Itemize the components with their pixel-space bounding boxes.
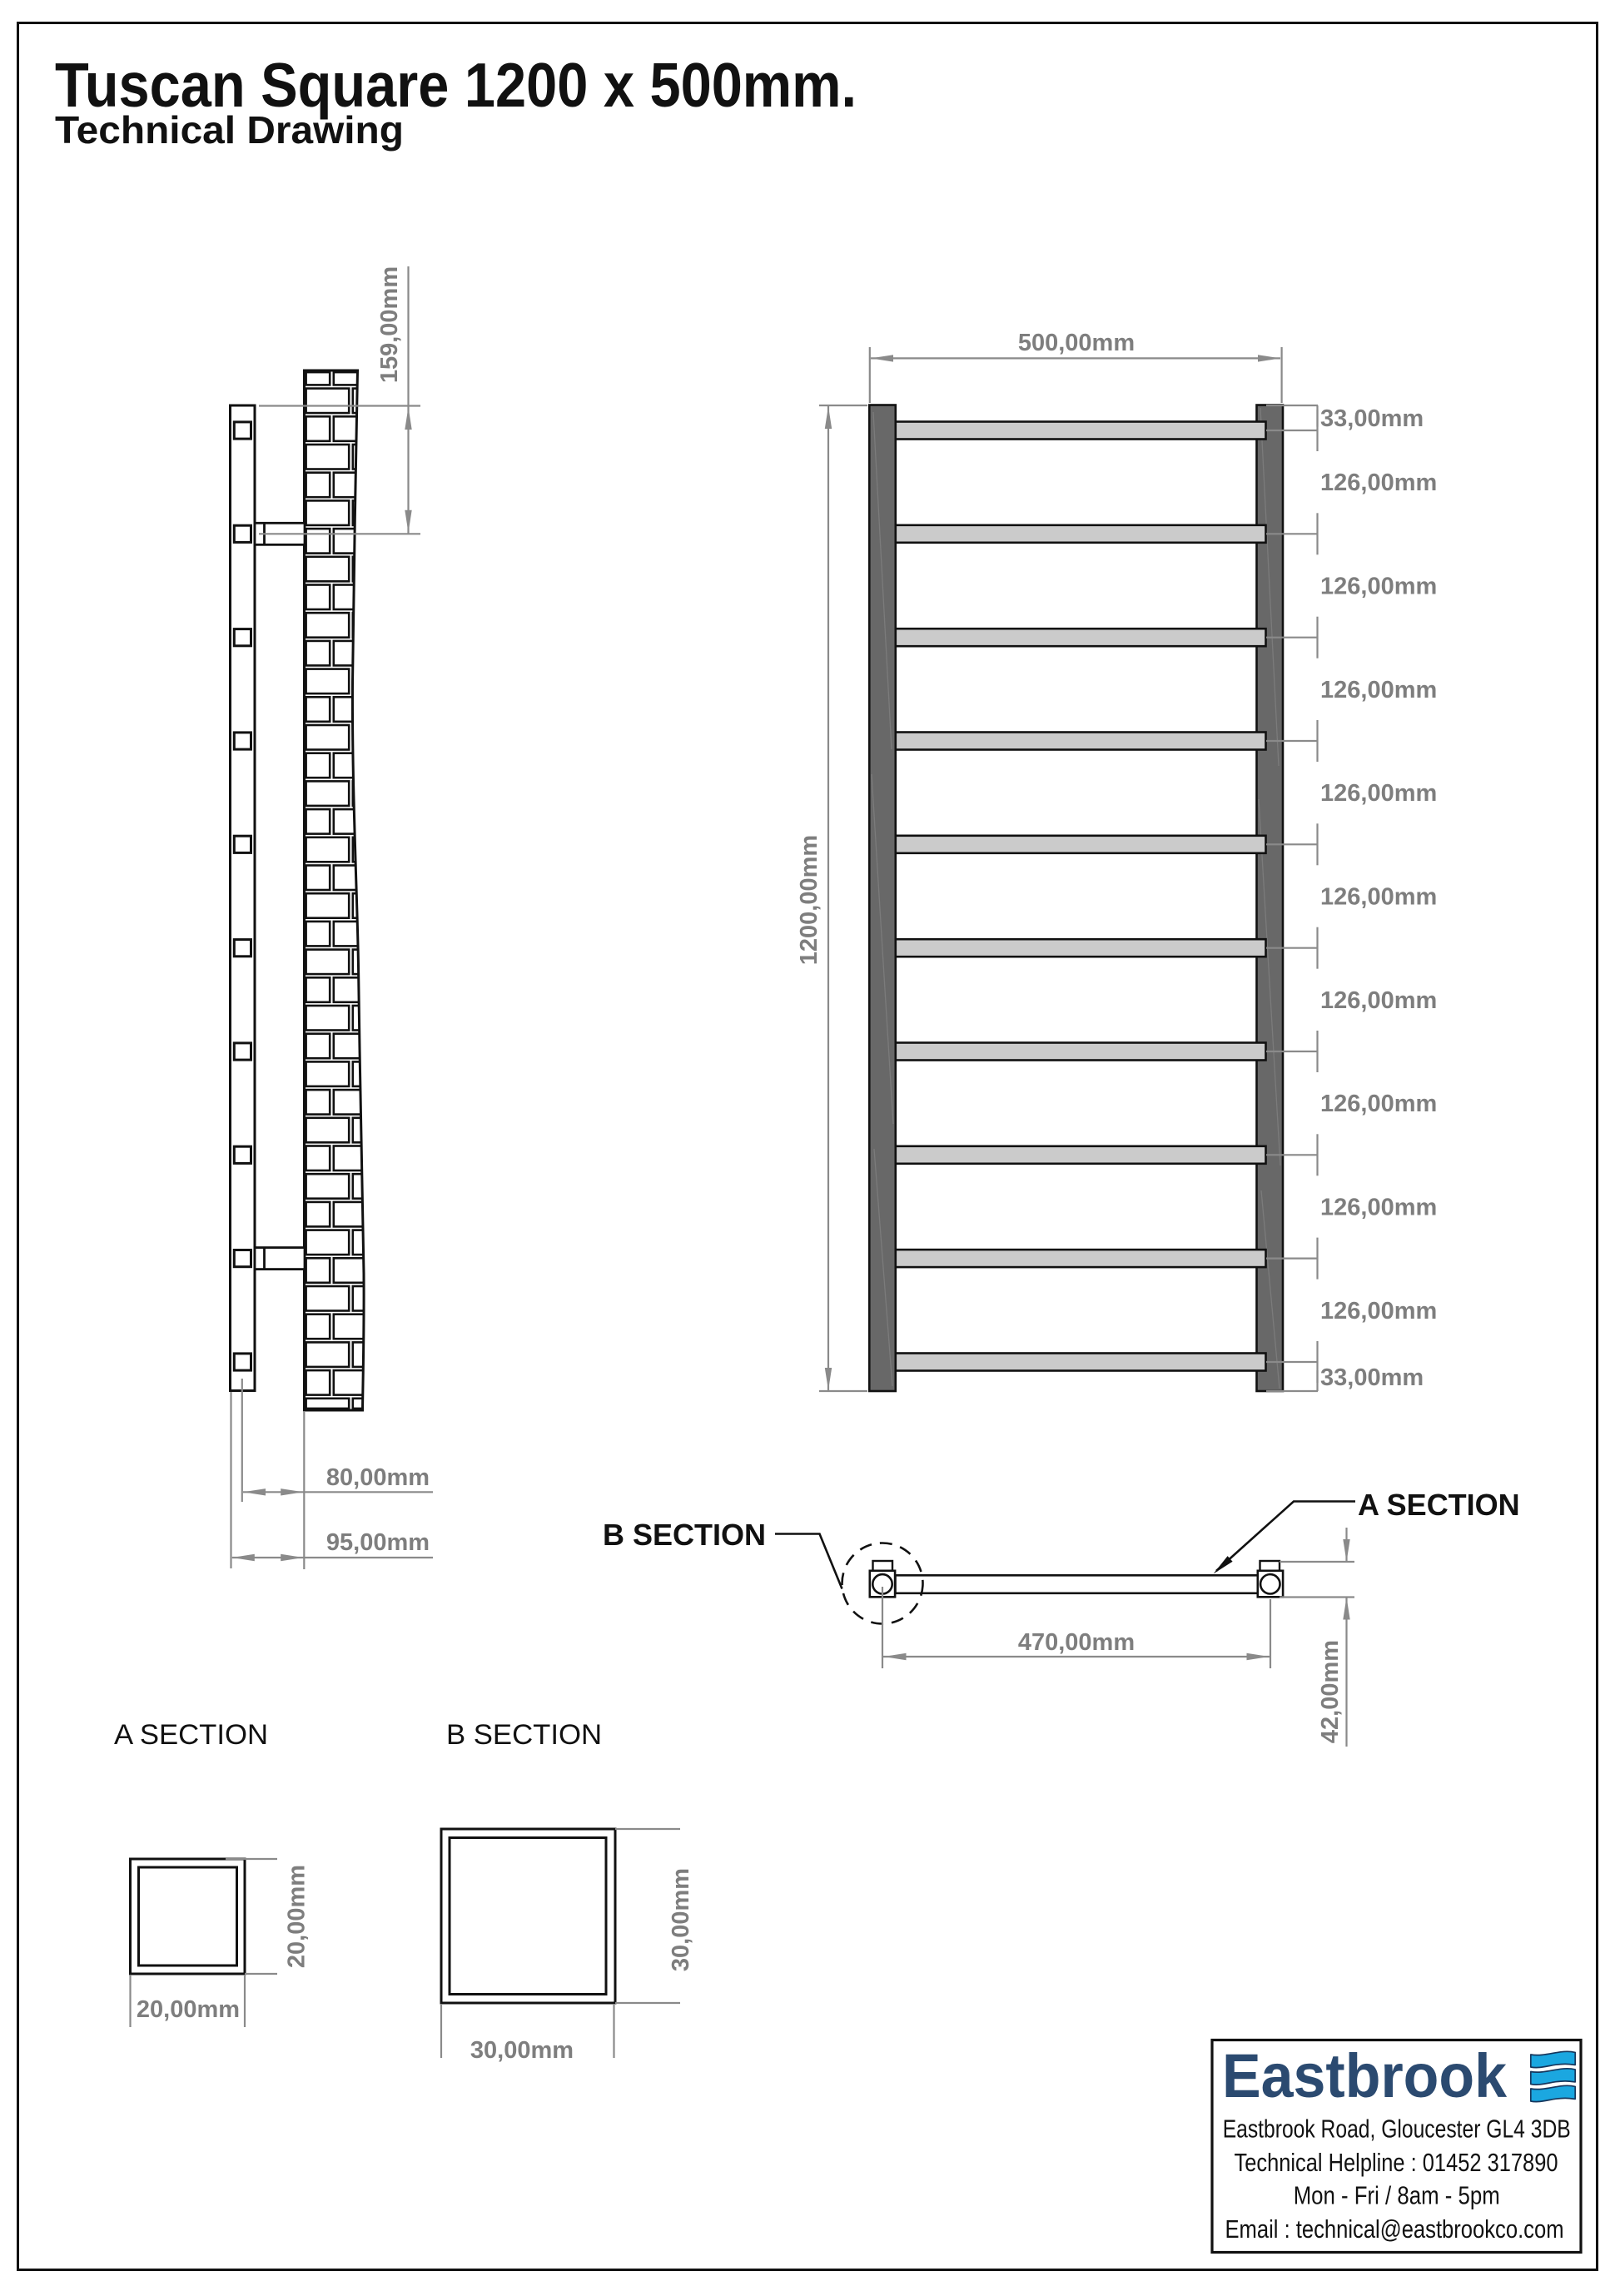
svg-text:33,00mm: 33,00mm — [1320, 1364, 1424, 1391]
svg-text:126,00mm: 126,00mm — [1320, 1091, 1437, 1117]
svg-text:Mon - Fri / 8am - 5pm: Mon - Fri / 8am - 5pm — [1294, 2181, 1500, 2210]
svg-text:33,00mm: 33,00mm — [1320, 405, 1424, 432]
svg-text:126,00mm: 126,00mm — [1320, 884, 1437, 911]
svg-text:A SECTION: A SECTION — [1358, 1488, 1520, 1522]
svg-text:126,00mm: 126,00mm — [1320, 1195, 1437, 1221]
svg-text:Email : technical@eastbrookco.: Email : technical@eastbrookco.com — [1225, 2214, 1564, 2244]
svg-text:126,00mm: 126,00mm — [1320, 1298, 1437, 1324]
svg-text:A SECTION: A SECTION — [114, 1719, 268, 1751]
svg-text:126,00mm: 126,00mm — [1320, 574, 1437, 600]
svg-text:Technical Helpline : 01452 317: Technical Helpline : 01452 317890 — [1235, 2148, 1558, 2177]
svg-text:159,00mm: 159,00mm — [376, 266, 403, 383]
svg-text:30,00mm: 30,00mm — [668, 1868, 694, 1971]
svg-text:Eastbrook Road, Gloucester GL4: Eastbrook Road, Gloucester GL4 3DB — [1223, 2115, 1571, 2144]
svg-text:42,00mm: 42,00mm — [1317, 1640, 1344, 1743]
svg-text:B SECTION: B SECTION — [603, 1518, 766, 1552]
svg-text:Eastbrook: Eastbrook — [1222, 2041, 1508, 2110]
svg-text:470,00mm: 470,00mm — [1018, 1629, 1135, 1656]
svg-text:126,00mm: 126,00mm — [1320, 677, 1437, 703]
svg-text:B SECTION: B SECTION — [446, 1719, 602, 1751]
svg-text:80,00mm: 80,00mm — [326, 1464, 430, 1491]
svg-text:20,00mm: 20,00mm — [137, 1996, 240, 2023]
svg-text:95,00mm: 95,00mm — [326, 1529, 430, 1556]
svg-text:Technical Drawing: Technical Drawing — [55, 108, 404, 152]
svg-text:126,00mm: 126,00mm — [1320, 470, 1437, 496]
svg-text:126,00mm: 126,00mm — [1320, 987, 1437, 1014]
svg-text:500,00mm: 500,00mm — [1018, 330, 1135, 356]
svg-text:30,00mm: 30,00mm — [470, 2037, 574, 2064]
svg-text:20,00mm: 20,00mm — [284, 1865, 311, 1968]
svg-text:1200,00mm: 1200,00mm — [796, 835, 822, 965]
svg-text:126,00mm: 126,00mm — [1320, 780, 1437, 807]
